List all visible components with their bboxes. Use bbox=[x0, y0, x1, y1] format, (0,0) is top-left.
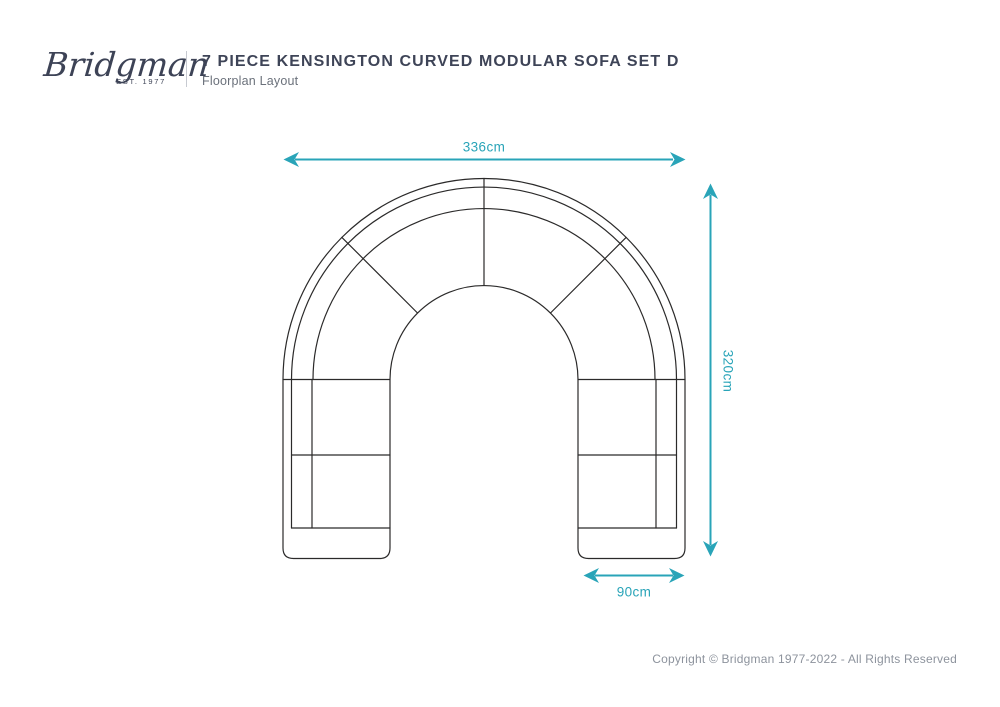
depth-dimension-label: 320cm bbox=[721, 350, 736, 393]
sofa-floorplan-diagram: 336cm 320cm 90cm bbox=[0, 0, 1000, 707]
sofa-inner-arc bbox=[390, 286, 578, 380]
arch-divider-right bbox=[551, 237, 627, 313]
dimension-annotations: 336cm 320cm 90cm bbox=[284, 140, 736, 600]
copyright-text: Copyright © Bridgman 1977-2022 - All Rig… bbox=[652, 652, 957, 666]
width-dimension-label: 336cm bbox=[463, 140, 506, 155]
left-leg-outline bbox=[283, 380, 390, 559]
sofa-outline-group bbox=[283, 178, 685, 558]
module-width-dimension-label: 90cm bbox=[617, 585, 652, 600]
arch-divider-left bbox=[342, 237, 418, 313]
floorplan-page: Bridgman EST. 1977 7 PIECE KENSINGTON CU… bbox=[0, 0, 1000, 707]
right-leg-outline bbox=[578, 380, 685, 559]
